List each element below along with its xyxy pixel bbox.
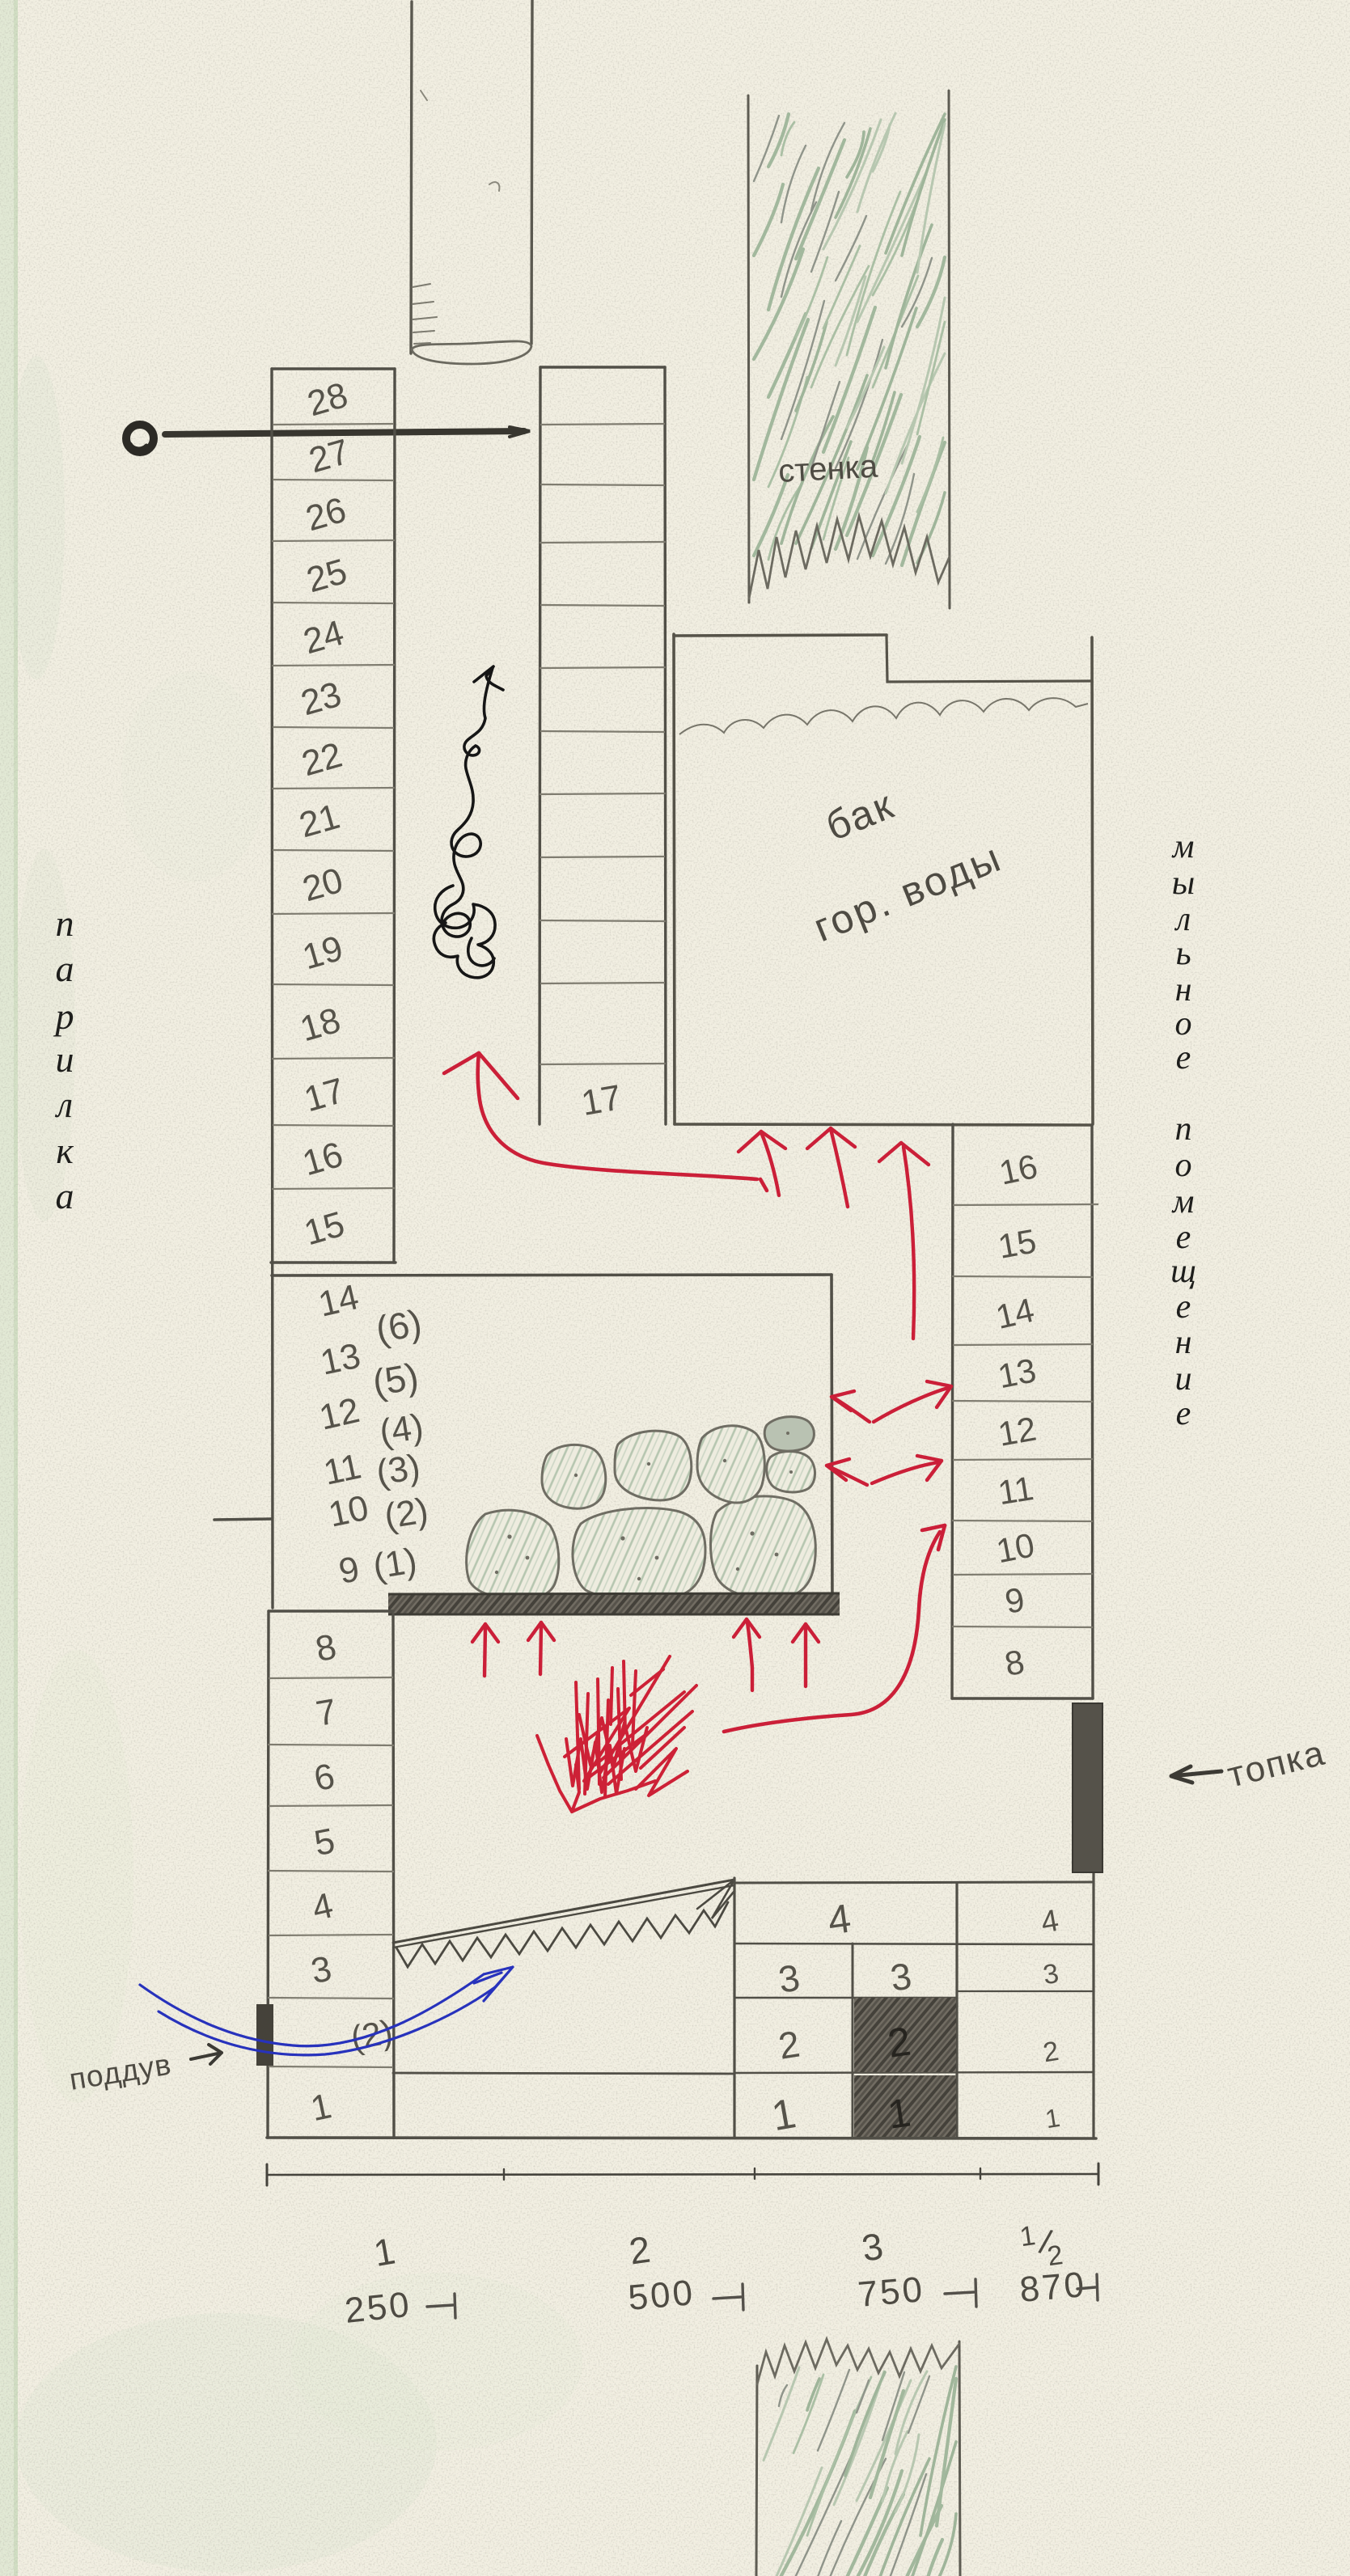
svg-text:а: а	[56, 1175, 74, 1216]
svg-text:870: 870	[1018, 2265, 1088, 2310]
svg-text:(6): (6)	[373, 1301, 425, 1351]
svg-text:12: 12	[995, 1410, 1039, 1453]
svg-text:е: е	[1176, 1395, 1191, 1432]
svg-text:11: 11	[996, 1469, 1036, 1512]
svg-text:щ: щ	[1170, 1253, 1196, 1290]
svg-text:о: о	[1175, 1147, 1192, 1184]
svg-text:е: е	[1176, 1219, 1191, 1256]
svg-text:о: о	[1175, 1005, 1192, 1043]
svg-text:п: п	[1175, 1110, 1192, 1148]
svg-text:е: е	[1176, 1288, 1191, 1326]
svg-text:10: 10	[993, 1525, 1038, 1570]
svg-text:а: а	[56, 948, 74, 989]
svg-text:и: и	[1175, 1360, 1192, 1398]
svg-text:(3): (3)	[374, 1447, 423, 1493]
svg-text:п: п	[56, 903, 74, 944]
svg-text:16: 16	[996, 1147, 1040, 1192]
svg-text:(1): (1)	[370, 1541, 420, 1587]
svg-text:стенка: стенка	[777, 449, 879, 489]
svg-text:13: 13	[317, 1336, 364, 1383]
svg-text:м: м	[1171, 1183, 1195, 1220]
svg-text:е: е	[1176, 1039, 1191, 1077]
svg-text:500: 500	[627, 2273, 696, 2318]
svg-text:(5): (5)	[370, 1355, 421, 1404]
svg-text:н: н	[1175, 971, 1192, 1009]
svg-text:10: 10	[325, 1488, 372, 1535]
svg-text:к: к	[56, 1130, 74, 1171]
svg-text:(4): (4)	[377, 1406, 426, 1453]
svg-text:(2): (2)	[382, 1491, 431, 1537]
svg-text:13: 13	[995, 1351, 1039, 1395]
svg-text:ь: ь	[1175, 935, 1191, 972]
svg-text:ы: ы	[1172, 865, 1195, 902]
svg-text:м: м	[1171, 828, 1195, 865]
svg-text:н: н	[1175, 1324, 1192, 1361]
svg-text:р: р	[53, 996, 74, 1037]
svg-text:250: 250	[343, 2285, 413, 2331]
svg-text:и: и	[56, 1038, 74, 1080]
svg-text:л: л	[54, 1084, 73, 1125]
svg-text:15: 15	[995, 1222, 1039, 1266]
svg-text:17: 17	[578, 1077, 624, 1123]
svg-text:л: л	[1174, 901, 1191, 938]
svg-text:750: 750	[857, 2269, 926, 2315]
